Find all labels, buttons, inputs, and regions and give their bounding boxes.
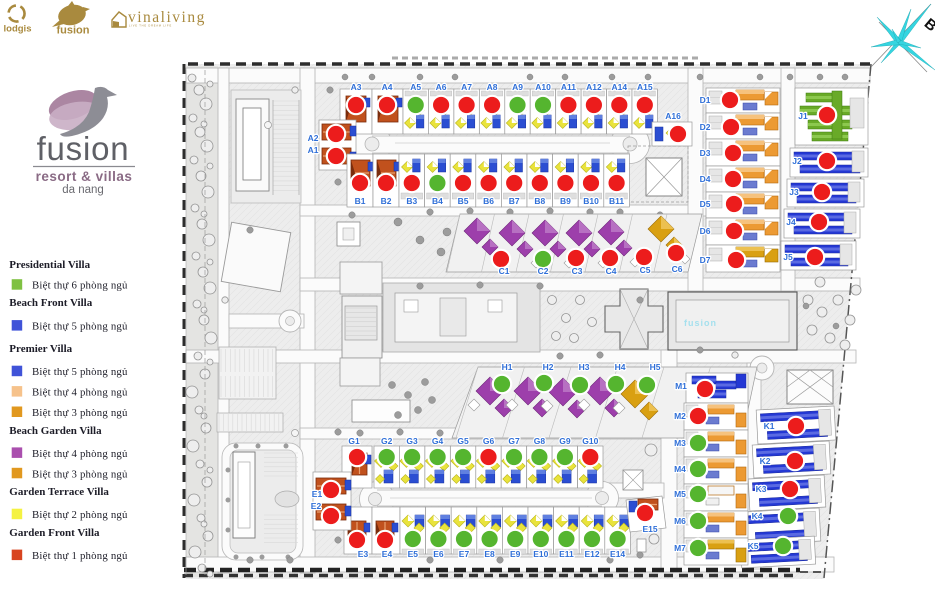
svg-text:Biệt thự 5 phòng ngủ: Biệt thự 5 phòng ngủ (32, 366, 128, 378)
svg-text:Garden Terrace Villa: Garden Terrace Villa (9, 486, 109, 498)
svg-text:fusion: fusion (37, 130, 130, 167)
svg-text:Biệt thự 6 phòng ngủ: Biệt thự 6 phòng ngủ (32, 280, 128, 292)
svg-text:Biệt thự 3 phòng ngủ: Biệt thự 3 phòng ngủ (32, 468, 128, 480)
svg-text:Beach Front Villa: Beach Front Villa (9, 297, 92, 309)
svg-text:Biệt thự 4 phòng ngủ: Biệt thự 4 phòng ngủ (32, 448, 128, 460)
svg-text:lodgis: lodgis (4, 24, 32, 35)
svg-text:Presidential Villa: Presidential Villa (9, 259, 90, 271)
svg-text:vinaliving: vinaliving (128, 9, 206, 26)
svg-text:Premier Villa: Premier Villa (9, 343, 72, 355)
svg-text:da nang: da nang (62, 184, 104, 196)
svg-text:Beach Garden Villa: Beach Garden Villa (9, 425, 102, 437)
svg-text:B: B (921, 15, 935, 35)
svg-text:resort & villas: resort & villas (36, 169, 133, 184)
svg-text:Biệt thự 3 phòng ngủ: Biệt thự 3 phòng ngủ (32, 407, 128, 419)
svg-text:Biệt thự 1 phòng ngủ: Biệt thự 1 phòng ngủ (32, 550, 128, 562)
svg-text:Garden Front Villa: Garden Front Villa (9, 527, 100, 539)
svg-text:Biệt thự 2 phòng ngủ: Biệt thự 2 phòng ngủ (32, 509, 128, 521)
svg-text:Biệt thự 4 phòng ngủ: Biệt thự 4 phòng ngủ (32, 387, 128, 399)
svg-text:LIVE THE DREAM LIFE: LIVE THE DREAM LIFE (129, 24, 172, 28)
svg-text:Biệt thự 5 phòng ngủ: Biệt thự 5 phòng ngủ (32, 321, 128, 333)
svg-text:fusion: fusion (57, 25, 90, 37)
